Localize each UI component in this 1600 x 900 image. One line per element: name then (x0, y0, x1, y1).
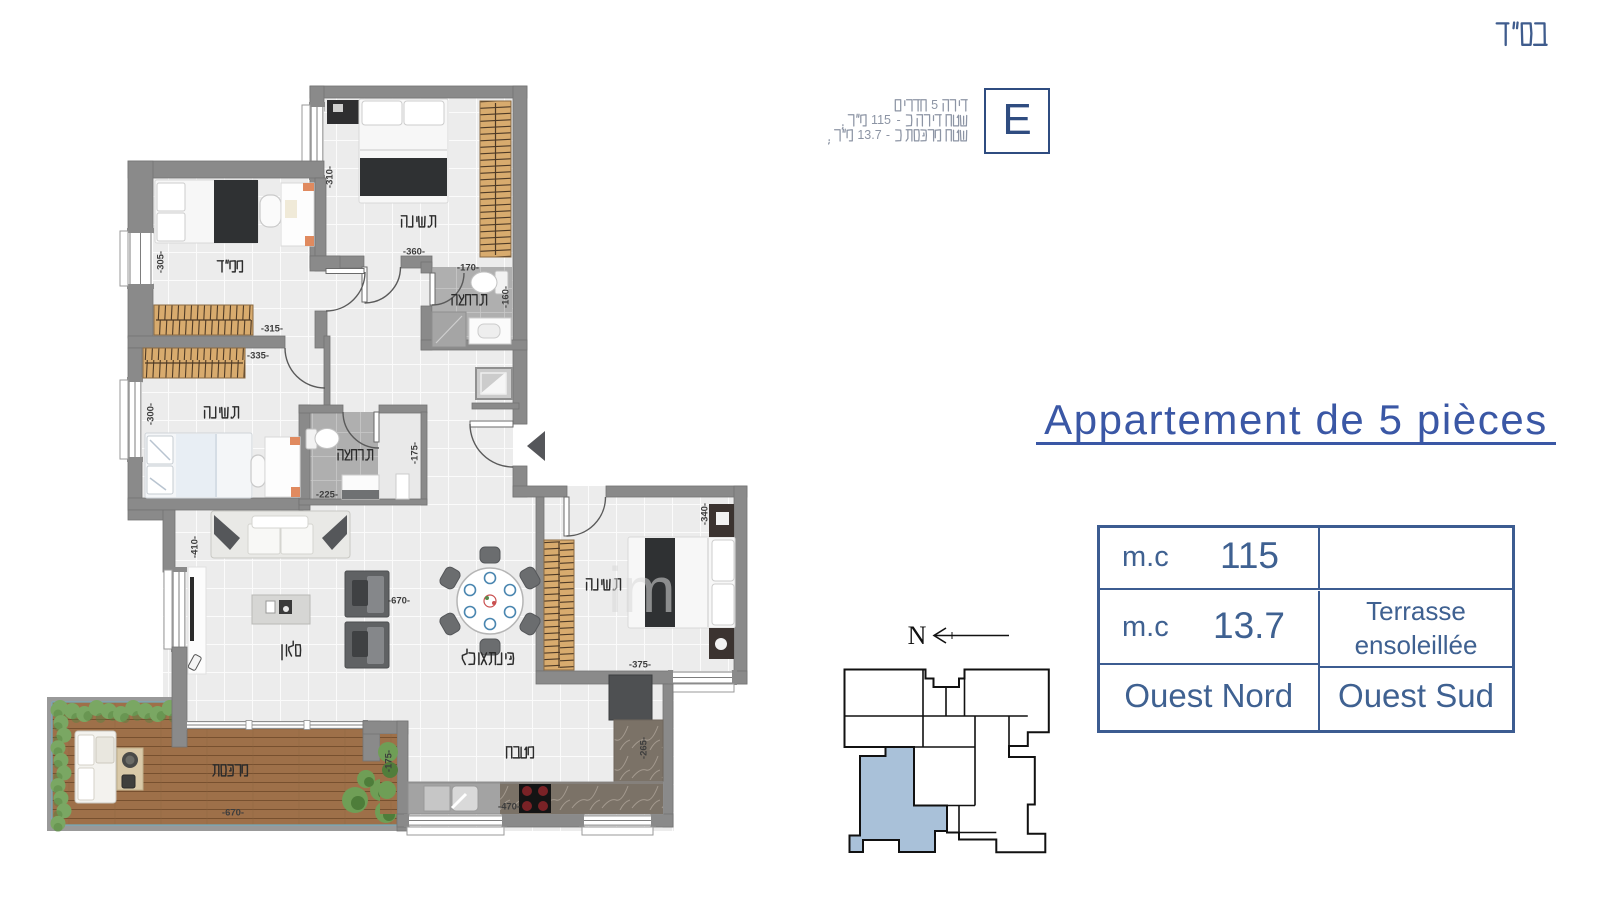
svg-text:-340-: -340- (699, 503, 710, 525)
svg-text:-175-: -175- (383, 750, 394, 772)
svg-text:N: N (908, 621, 927, 650)
svg-text:-: - (886, 128, 890, 142)
svg-text:-670-: -670- (222, 807, 244, 818)
svg-text:-175-: -175- (409, 442, 420, 464)
svg-text:-670-: -670- (388, 595, 410, 606)
svg-text:-375-: -375- (629, 659, 651, 670)
svg-text:-335-: -335- (247, 350, 269, 361)
svg-text:115: 115 (871, 113, 891, 127)
svg-text:-410-: -410- (189, 536, 200, 558)
svg-text:-265-: -265- (638, 737, 649, 759)
svg-text:-300-: -300- (145, 403, 156, 425)
svg-text:-315-: -315- (261, 323, 283, 334)
svg-text:im: im (608, 554, 676, 626)
svg-text:-305-: -305- (155, 251, 166, 273)
svg-text:-360-: -360- (403, 246, 425, 257)
svg-text:-225-: -225- (316, 489, 338, 500)
svg-text:-160-: -160- (500, 286, 511, 308)
svg-text:13.7: 13.7 (857, 128, 881, 142)
svg-text:-: - (897, 113, 901, 127)
svg-text:5: 5 (931, 98, 938, 112)
svg-text:-470-: -470- (498, 801, 520, 812)
svg-text:-170-: -170- (457, 262, 479, 273)
